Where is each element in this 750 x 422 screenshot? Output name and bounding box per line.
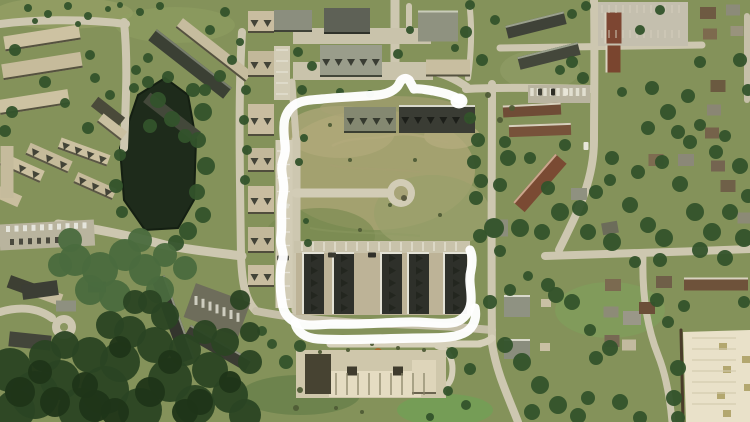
building [347,367,357,376]
building [707,105,721,116]
building [248,148,274,172]
building [541,299,551,307]
building [320,45,382,77]
building [407,252,429,314]
building [605,13,622,44]
building [324,8,370,34]
building [703,29,717,40]
building [380,252,402,314]
building [731,26,744,36]
building [700,7,716,19]
building [604,307,619,318]
building [248,51,274,77]
building [399,105,475,133]
building [248,265,274,287]
building [302,252,324,314]
building [623,311,641,325]
building [248,11,274,33]
building [684,278,748,291]
building [540,343,550,351]
building [426,60,470,77]
building [248,227,274,253]
building [504,295,530,317]
building [443,252,467,314]
building [571,188,587,200]
building [248,186,274,214]
building [721,180,736,192]
building [738,213,750,224]
building [711,161,725,172]
screenshot-root [0,0,750,422]
building [329,371,421,397]
building [332,252,354,314]
aerial-satellite-image [0,0,750,422]
building [344,107,396,133]
building [248,104,274,136]
building [509,123,571,137]
building [705,128,719,139]
building [605,279,621,291]
large-building [683,330,750,422]
building [606,46,621,73]
building [656,276,672,288]
building [622,340,636,351]
building [726,5,740,16]
building [711,80,726,92]
building [56,301,76,312]
building [418,11,458,42]
building [678,154,694,166]
building [1,146,14,198]
building [274,10,312,32]
building [305,354,331,394]
